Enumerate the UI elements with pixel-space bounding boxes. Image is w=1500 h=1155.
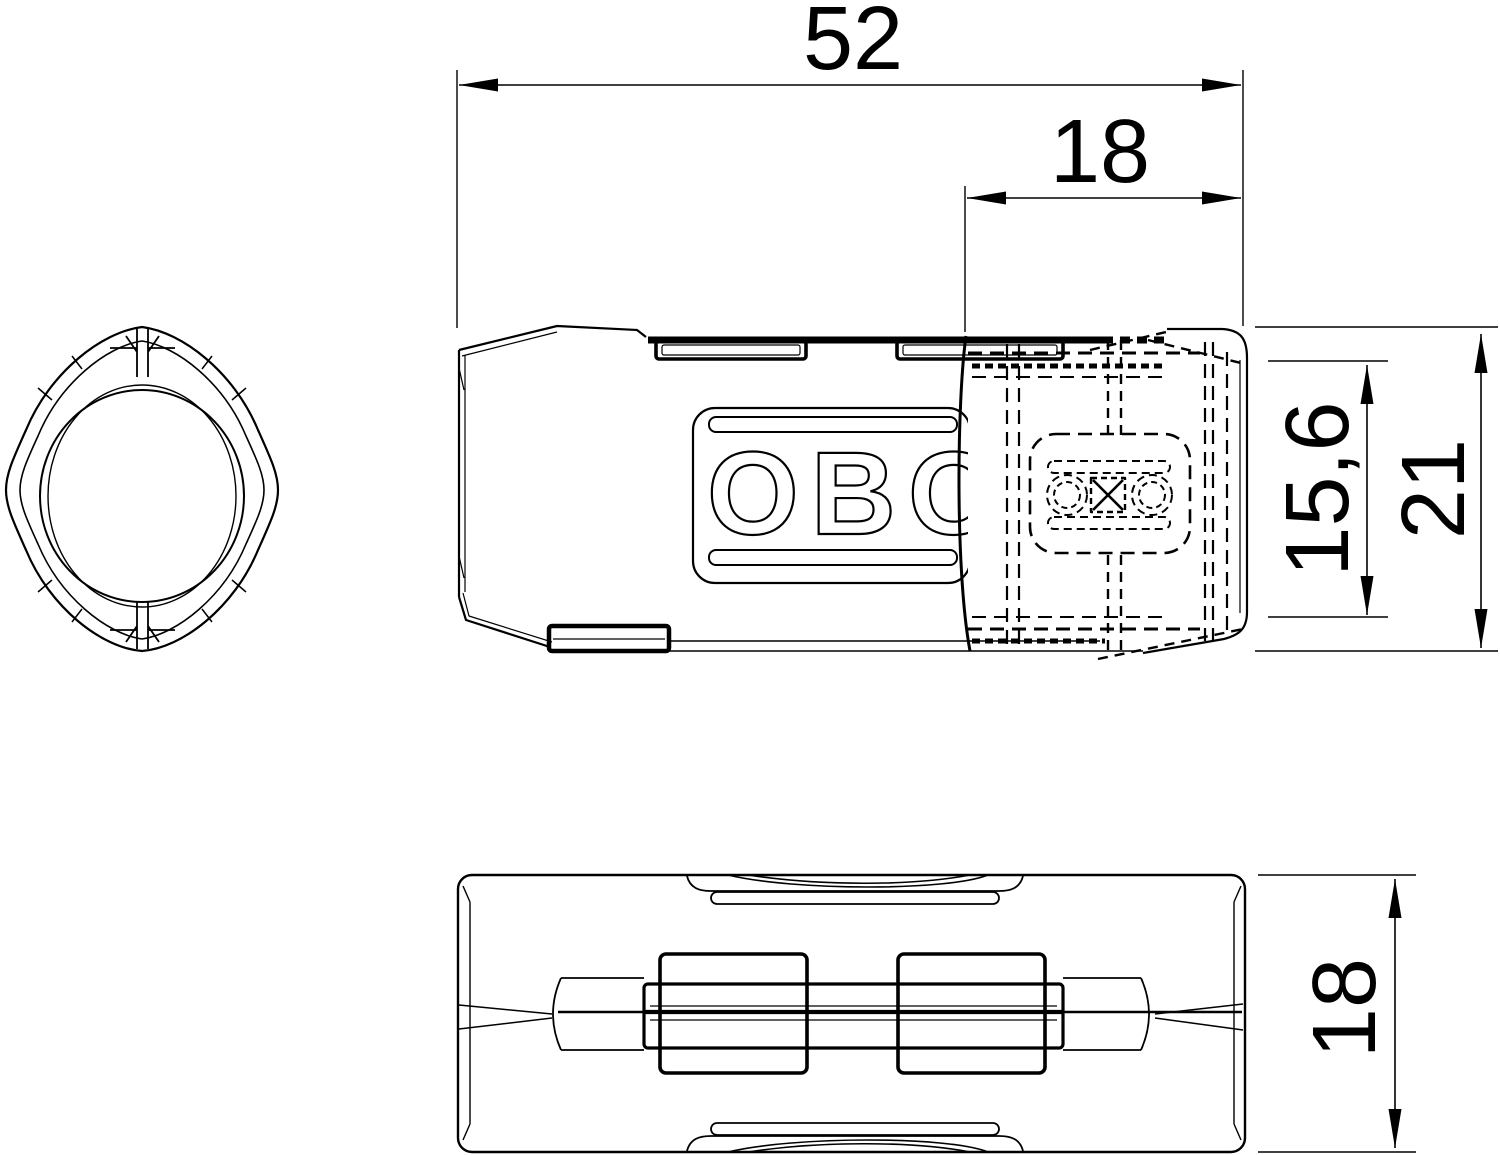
side-view-cones xyxy=(459,1004,1243,1030)
top-view-top-left-contour xyxy=(459,326,646,350)
slider-clamp xyxy=(959,336,1227,651)
end-view xyxy=(6,327,278,651)
slider-dashed-verticals xyxy=(1007,342,1227,646)
dim-text-body-width: 18 xyxy=(1295,958,1395,1058)
end-view-bore-inner xyxy=(48,385,236,607)
top-view-bottom-left-contour-inner xyxy=(463,593,552,642)
top-view: OBO xyxy=(459,326,1247,659)
top-view-tab-top-right xyxy=(897,341,1063,359)
clamp-cross-diagonals xyxy=(1093,480,1123,510)
top-view-bottom-left-contour xyxy=(459,597,550,647)
dim-text-slider-length: 18 xyxy=(1050,102,1150,202)
clamp-panel-bar-top xyxy=(1048,461,1170,473)
end-view-bore-outer xyxy=(40,390,244,602)
clamp-hole-right-inner xyxy=(1139,482,1165,508)
top-view-tab-top-left-inner xyxy=(662,345,800,355)
slider-screw-channel xyxy=(1108,340,1121,650)
top-view-bottom-edge xyxy=(668,641,1143,651)
dim-text-overall-length: 52 xyxy=(803,0,903,89)
top-view-top-left-contour-inner xyxy=(462,332,557,356)
side-view xyxy=(458,875,1245,1152)
logo-text: OBO xyxy=(707,428,1012,560)
dimensions: 52 18 15,6 21 18 xyxy=(457,0,1498,1152)
side-view-bottom-leaves xyxy=(728,1140,988,1152)
side-view-center-body xyxy=(644,984,1063,1048)
top-view-tab-top-left xyxy=(656,341,806,359)
logo-panel: OBO xyxy=(693,408,1012,583)
clamp-panel-bar-bottom xyxy=(1048,517,1170,529)
side-view-top-bar xyxy=(711,892,999,904)
dim-text-overall-height: 21 xyxy=(1384,439,1484,539)
technical-drawing-canvas: OBO xyxy=(0,0,1500,1155)
side-view-top-leaves xyxy=(728,875,988,887)
dim-text-clamp-height: 15,6 xyxy=(1268,401,1368,576)
drawing-sheet: OBO xyxy=(0,0,1500,1155)
top-view-diag-dashed xyxy=(1090,332,1243,659)
end-view-chamfer-ticks xyxy=(38,356,246,622)
clamp-hole-left-inner xyxy=(1054,482,1080,508)
side-view-bottom-bar xyxy=(711,1123,999,1135)
